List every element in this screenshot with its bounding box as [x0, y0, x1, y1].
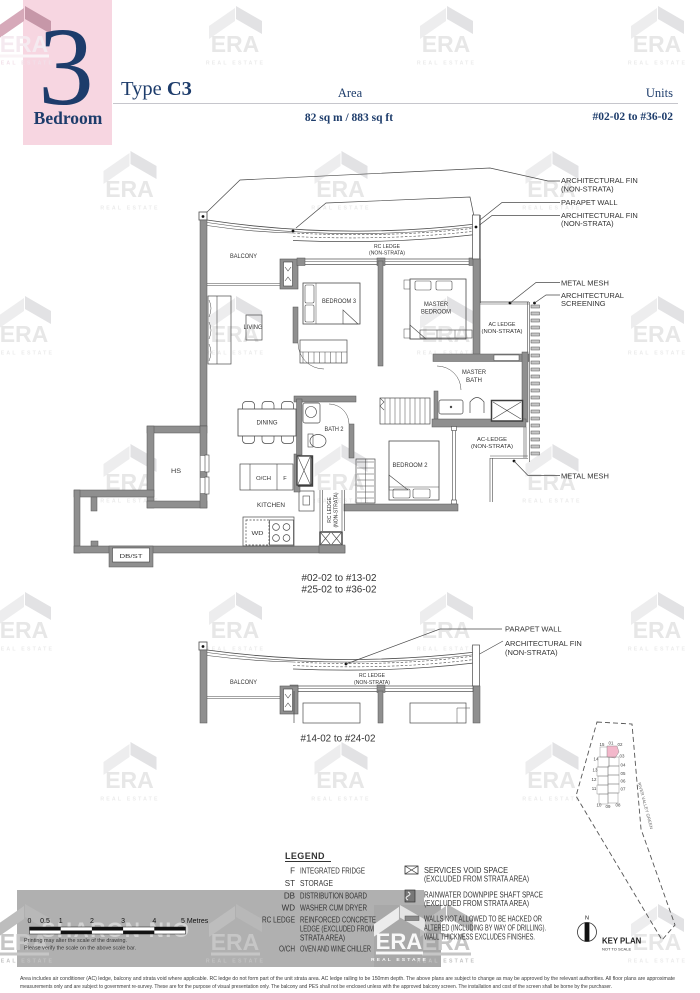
svg-text:RC LEDGE: RC LEDGE — [359, 673, 385, 679]
svg-text:DB: DB — [284, 892, 295, 901]
svg-text:10: 10 — [597, 803, 602, 808]
svg-text:0: 0 — [28, 918, 32, 925]
svg-text:WD: WD — [252, 531, 264, 537]
svg-text:WD: WD — [282, 904, 296, 913]
svg-text:STRATA AREA): STRATA AREA) — [300, 934, 345, 943]
svg-text:MASTER: MASTER — [462, 369, 486, 376]
svg-text:ST: ST — [285, 879, 295, 888]
svg-text:ERA: ERA — [422, 31, 471, 57]
svg-text:REAL ESTATE: REAL ESTATE — [206, 61, 265, 67]
svg-text:Bedroom: Bedroom — [34, 108, 103, 128]
svg-text:ERA: ERA — [527, 767, 576, 793]
svg-text:REAL ESTATE: REAL ESTATE — [206, 647, 265, 653]
svg-text:#14-02 to #24-02: #14-02 to #24-02 — [301, 734, 376, 745]
svg-text:WASHER CUM DRYER: WASHER CUM DRYER — [300, 904, 367, 913]
svg-text:(NON-STRATA): (NON-STRATA) — [354, 680, 390, 686]
svg-text:WALL THICKNESS EXCLUDES FINISH: WALL THICKNESS EXCLUDES FINISHES. — [424, 933, 535, 942]
svg-text:METAL MESH: METAL MESH — [561, 472, 609, 481]
svg-text:1: 1 — [59, 918, 63, 925]
svg-text:REAL ESTATE: REAL ESTATE — [0, 647, 54, 653]
svg-text:07: 07 — [621, 787, 626, 792]
svg-text:REINFORCED CONCRETE: REINFORCED CONCRETE — [300, 916, 376, 925]
svg-text:RC LEDGE: RC LEDGE — [374, 244, 400, 250]
svg-text:RC LEDGE: RC LEDGE — [262, 916, 295, 925]
svg-text:06: 06 — [621, 779, 626, 784]
svg-text:REAL ESTATE: REAL ESTATE — [206, 351, 265, 357]
svg-text:HS: HS — [171, 468, 181, 475]
svg-text:02: 02 — [618, 742, 623, 747]
svg-text:WALLS NOT ALLOWED TO BE HACKED: WALLS NOT ALLOWED TO BE HACKED OR — [424, 915, 542, 924]
svg-text:(EXCLUDED FROM STRATA AREA): (EXCLUDED FROM STRATA AREA) — [424, 875, 529, 884]
svg-text:PARAPET WALL: PARAPET WALL — [505, 625, 562, 634]
svg-text:15: 15 — [600, 742, 605, 747]
svg-text:BATH: BATH — [466, 377, 482, 384]
svg-text:08: 08 — [616, 803, 621, 808]
svg-text:ERA: ERA — [376, 929, 423, 954]
svg-text:09: 09 — [606, 804, 611, 809]
svg-text:13: 13 — [593, 768, 598, 773]
svg-text:MASTER: MASTER — [424, 301, 448, 308]
svg-text:ERA: ERA — [0, 321, 48, 347]
svg-text:#25-02 to #36-02: #25-02 to #36-02 — [302, 585, 377, 596]
svg-text:2: 2 — [90, 918, 94, 925]
svg-text:KEY PLAN: KEY PLAN — [602, 937, 642, 946]
svg-text:REAL ESTATE: REAL ESTATE — [522, 797, 581, 803]
svg-text:Please verify the scale on the: Please verify the scale on the above sca… — [24, 946, 136, 952]
svg-text:ERA: ERA — [633, 31, 682, 57]
svg-text:BALCONY: BALCONY — [230, 253, 257, 260]
svg-text:(NON-STRATA): (NON-STRATA) — [334, 492, 340, 527]
svg-text:ERA: ERA — [633, 321, 682, 347]
svg-text:03: 03 — [620, 754, 625, 759]
svg-text:ERA: ERA — [105, 176, 154, 202]
svg-text:REAL ESTATE: REAL ESTATE — [0, 959, 54, 965]
svg-text:Area: Area — [338, 86, 363, 100]
svg-text:REAL ESTATE: REAL ESTATE — [0, 351, 54, 357]
svg-text:DB/ST: DB/ST — [120, 554, 144, 560]
svg-text:Units: Units — [646, 86, 673, 100]
svg-text:(NON-STRATA): (NON-STRATA) — [561, 185, 614, 194]
svg-text:05: 05 — [621, 771, 626, 776]
svg-text:ERA: ERA — [316, 469, 365, 495]
svg-text:ERA: ERA — [422, 321, 471, 347]
svg-text:(NON-STRATA): (NON-STRATA) — [471, 444, 513, 450]
svg-text:BEDROOM: BEDROOM — [421, 309, 451, 316]
svg-text:ERA: ERA — [105, 767, 154, 793]
svg-text:RIVER VALLEY GREEN: RIVER VALLEY GREEN — [637, 782, 654, 830]
svg-text:4: 4 — [152, 918, 156, 925]
svg-text:REAL ESTATE: REAL ESTATE — [628, 61, 687, 67]
svg-text:OVEN AND WINE CHILLER: OVEN AND WINE CHILLER — [300, 945, 371, 954]
svg-text:ERA: ERA — [211, 929, 260, 955]
svg-text:ALTERED (INCLUDING BY WAY OF D: ALTERED (INCLUDING BY WAY OF DRILLING). — [424, 924, 546, 933]
svg-text:N: N — [585, 916, 589, 922]
svg-text:(NON-STRATA): (NON-STRATA) — [369, 251, 405, 257]
svg-text:ARCHITECTURAL FIN: ARCHITECTURAL FIN — [505, 639, 582, 648]
svg-text:REAL ESTATE: REAL ESTATE — [628, 351, 687, 357]
svg-text:SCREENING: SCREENING — [561, 299, 606, 308]
svg-text:(NON-STRATA): (NON-STRATA) — [561, 219, 614, 228]
svg-text:O/CH: O/CH — [279, 945, 295, 954]
svg-text:LEDGE (EXCLUDED FROM: LEDGE (EXCLUDED FROM — [300, 925, 374, 934]
svg-text:AC LEDGE: AC LEDGE — [489, 322, 516, 328]
svg-text:REAL ESTATE: REAL ESTATE — [311, 797, 370, 803]
svg-text:LIVING: LIVING — [244, 324, 263, 331]
svg-text:REAL ESTATE: REAL ESTATE — [628, 959, 687, 965]
svg-text:01: 01 — [609, 741, 614, 746]
svg-text:O/CH: O/CH — [256, 476, 271, 482]
svg-text:Printing may alter the scale o: Printing may alter the scale of the draw… — [24, 938, 127, 944]
svg-text:STORAGE: STORAGE — [300, 879, 333, 888]
svg-text:(NON-STRATA): (NON-STRATA) — [505, 648, 558, 657]
svg-text:REAL ESTATE: REAL ESTATE — [100, 206, 159, 212]
svg-text:LEGEND: LEGEND — [285, 851, 325, 861]
svg-text:ERA: ERA — [316, 176, 365, 202]
svg-text:AC-LEDGE: AC-LEDGE — [477, 437, 507, 443]
svg-text:METAL MESH: METAL MESH — [561, 278, 609, 287]
svg-text:measurements only and are subj: measurements only and are subject to gov… — [20, 984, 612, 990]
svg-text:INTEGRATED FRIDGE: INTEGRATED FRIDGE — [300, 867, 365, 876]
svg-text:5 Metres: 5 Metres — [181, 918, 209, 925]
svg-text:ERA: ERA — [211, 617, 260, 643]
svg-text:11: 11 — [592, 786, 597, 791]
svg-text:REAL ESTATE: REAL ESTATE — [311, 206, 370, 212]
svg-text:ERA: ERA — [0, 617, 48, 643]
svg-text:ERA: ERA — [422, 617, 471, 643]
svg-text:REAL ESTATE: REAL ESTATE — [417, 61, 476, 67]
svg-text:DISTRIBUTION BOARD: DISTRIBUTION BOARD — [300, 892, 367, 901]
svg-text:BEDROOM 3: BEDROOM 3 — [322, 298, 356, 305]
svg-text:REAL ESTATE: REAL ESTATE — [206, 959, 265, 965]
svg-text:14: 14 — [594, 757, 599, 762]
svg-text:#02-02 to #13-02: #02-02 to #13-02 — [302, 573, 377, 584]
svg-text:REAL ESTATE: REAL ESTATE — [371, 957, 428, 963]
svg-text:BEDROOM 2: BEDROOM 2 — [393, 462, 428, 469]
svg-text:BATH 2: BATH 2 — [325, 426, 344, 433]
svg-text:F: F — [290, 867, 295, 876]
svg-text:04: 04 — [621, 763, 626, 768]
svg-text:ERA: ERA — [316, 767, 365, 793]
svg-text:PARAPET WALL: PARAPET WALL — [561, 198, 618, 207]
svg-text:RC LEDGE: RC LEDGE — [327, 497, 333, 523]
svg-text:(NON-STRATA): (NON-STRATA) — [482, 329, 523, 335]
svg-text:BALCONY: BALCONY — [230, 679, 257, 686]
svg-text:3: 3 — [121, 918, 125, 925]
svg-text:Area includes air conditioner: Area includes air conditioner (AC) ledge… — [20, 976, 675, 982]
svg-text:#02-02 to #36-02: #02-02 to #36-02 — [593, 111, 674, 123]
svg-text:82 sq m / 883 sq ft: 82 sq m / 883 sq ft — [305, 112, 393, 124]
svg-text:F: F — [283, 476, 287, 482]
svg-text:DINING: DINING — [257, 420, 278, 427]
svg-text:12: 12 — [592, 777, 597, 782]
svg-text:REAL ESTATE: REAL ESTATE — [522, 499, 581, 505]
svg-text:0.5: 0.5 — [40, 918, 50, 925]
svg-text:NOT TO SCALE: NOT TO SCALE — [602, 947, 631, 952]
svg-text:REAL ESTATE: REAL ESTATE — [628, 647, 687, 653]
svg-text:Type C3: Type C3 — [121, 78, 192, 100]
svg-text:ERA: ERA — [211, 31, 260, 57]
svg-text:(EXCLUDED FROM STRATA AREA): (EXCLUDED FROM STRATA AREA) — [424, 899, 529, 908]
svg-text:KITCHEN: KITCHEN — [257, 502, 285, 509]
svg-text:REAL ESTATE: REAL ESTATE — [100, 797, 159, 803]
svg-text:REAL ESTATE: REAL ESTATE — [417, 647, 476, 653]
svg-text:ERA: ERA — [633, 617, 682, 643]
